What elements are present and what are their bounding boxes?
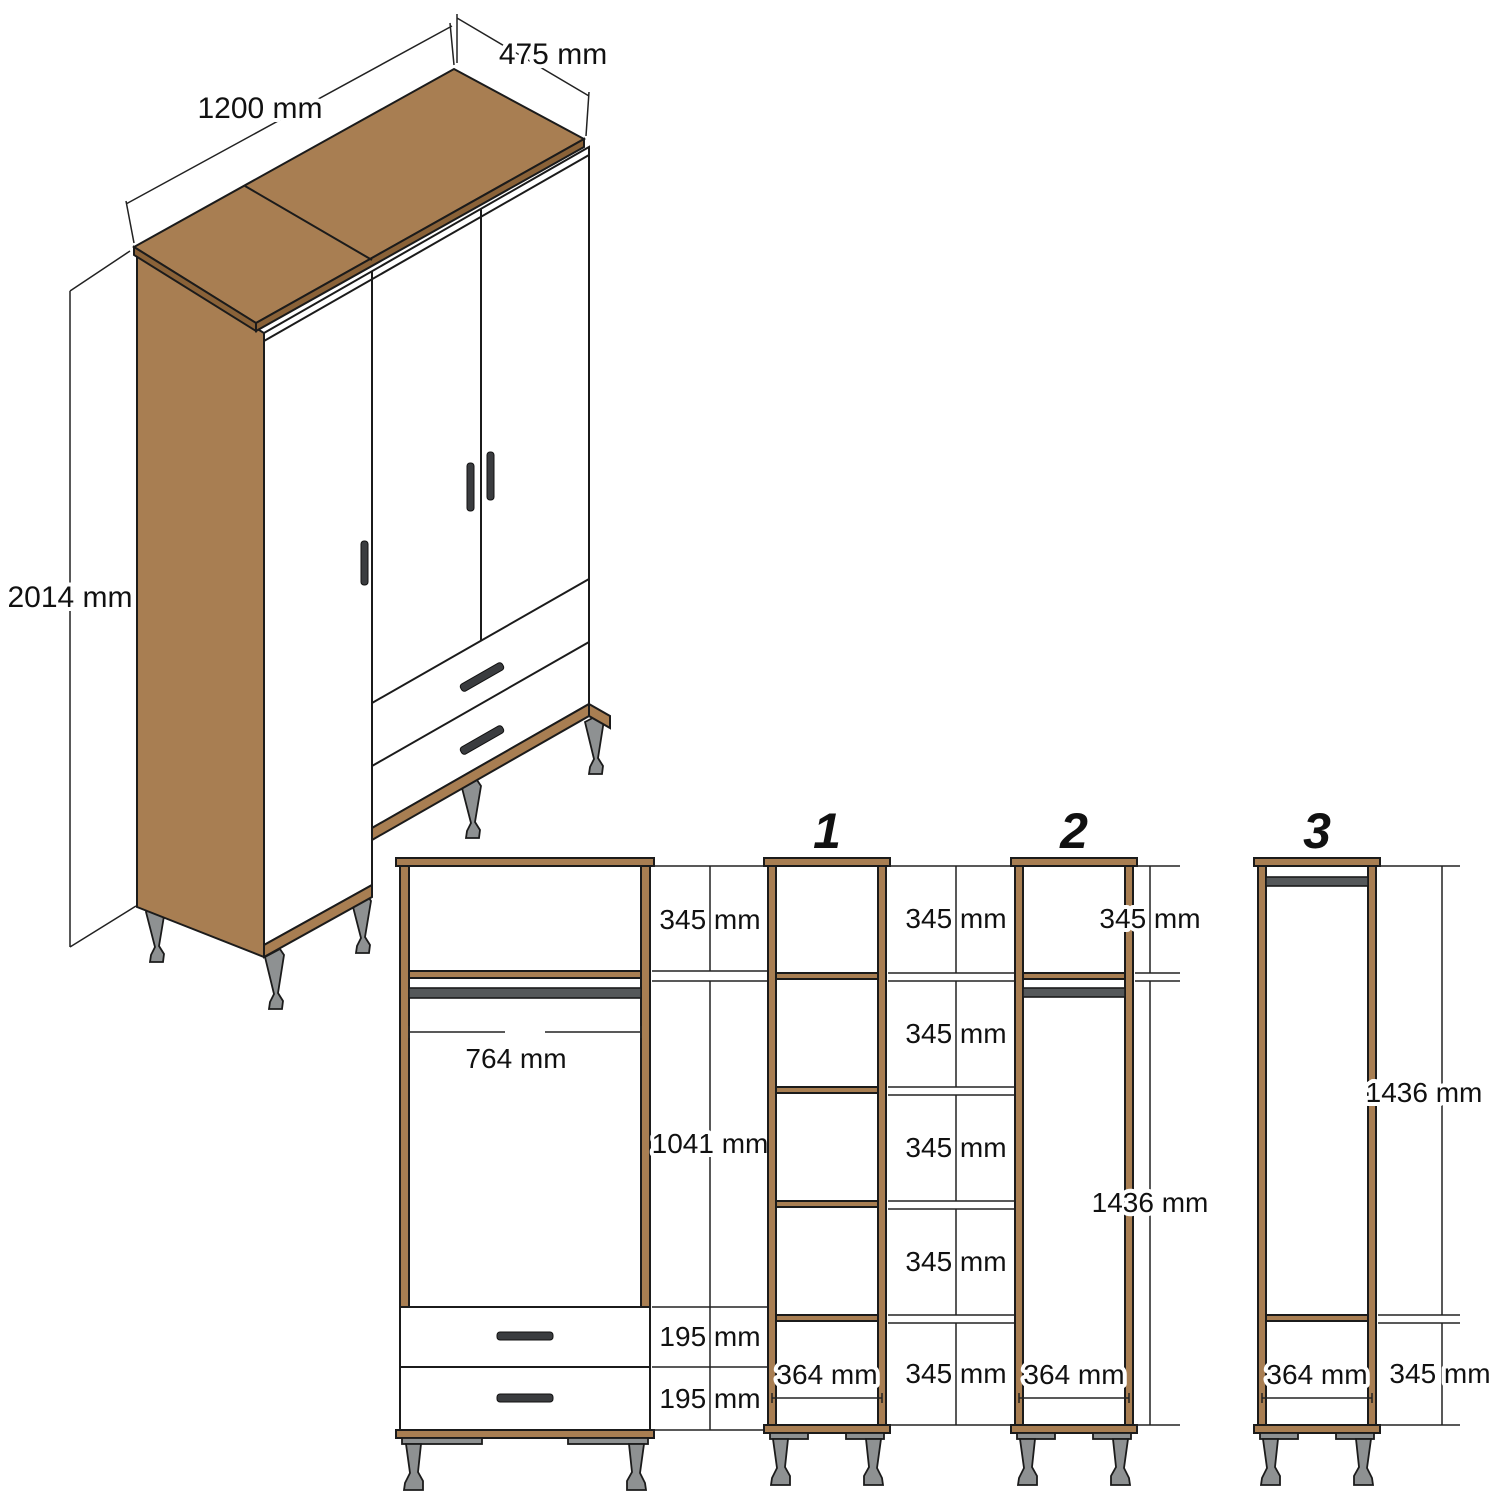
drawer-handle-1	[497, 1332, 553, 1340]
dim-2: 345 mm	[905, 1018, 1006, 1049]
dim-width: 364 mm	[1023, 1359, 1124, 1390]
top-board	[1011, 858, 1137, 866]
dim-4: 345 mm	[905, 1246, 1006, 1277]
shelf-3	[776, 1201, 878, 1207]
side-panel	[137, 255, 264, 957]
section-2-number: 2	[1059, 803, 1088, 859]
dim-5: 345 mm	[905, 1358, 1006, 1389]
left-wall	[1015, 866, 1023, 1425]
top-board	[764, 858, 890, 866]
top-board	[1254, 858, 1380, 866]
dim-1: 1436 mm	[1366, 1077, 1483, 1108]
shelf-4	[776, 1315, 878, 1321]
left-wall	[768, 866, 776, 1425]
dim-2: 345 mm	[1389, 1358, 1490, 1389]
drawing-canvas: 1200 mm 475 mm 2014 mm	[0, 0, 1500, 1500]
top-shelf	[409, 971, 641, 978]
dim-width: 364 mm	[776, 1359, 877, 1390]
carcass	[1258, 866, 1376, 1425]
dim-3: 345 mm	[905, 1132, 1006, 1163]
right-wall	[1368, 866, 1376, 1425]
left-door-handle	[361, 541, 368, 585]
top-board	[396, 858, 654, 866]
hanging-rail	[1023, 988, 1125, 997]
right-door-handle	[487, 452, 494, 500]
bottom-board	[396, 1430, 654, 1438]
height-dim-label: 2014 mm	[7, 581, 132, 614]
shelf	[1266, 1315, 1368, 1321]
hanging-rail	[1266, 877, 1368, 886]
dim-width: 364 mm	[1266, 1359, 1367, 1390]
shelf-1	[776, 973, 878, 979]
dim-1: 345 mm	[1099, 903, 1200, 934]
dim-drawer-bottom: 195 mm	[659, 1383, 760, 1414]
carcass	[1015, 866, 1133, 1425]
width-dim-label: 1200 mm	[197, 92, 322, 125]
bottom-board	[1011, 1425, 1137, 1433]
middle-door-handle	[467, 463, 474, 511]
bottom-board	[764, 1425, 890, 1433]
dim-middle-section: 1041 mm	[652, 1128, 769, 1159]
depth-dim-label: 475 mm	[499, 38, 607, 71]
technical-drawing-page: 1200 mm 475 mm 2014 mm	[0, 0, 1500, 1500]
carcass	[768, 866, 886, 1425]
section-1-number: 1	[813, 803, 841, 859]
dim-2: 1436 mm	[1092, 1187, 1209, 1218]
rail-width-label: 764 mm	[465, 1043, 566, 1074]
drawer-handle-2	[497, 1394, 553, 1402]
left-wall	[1258, 866, 1266, 1425]
shelf	[1023, 973, 1125, 979]
hanging-rail	[409, 988, 641, 998]
section-3-number: 3	[1303, 803, 1331, 859]
bottom-board	[1254, 1425, 1380, 1433]
dim-1: 345 mm	[905, 903, 1006, 934]
dim-top-section: 345 mm	[659, 904, 760, 935]
right-wall	[878, 866, 886, 1425]
shelf-2	[776, 1087, 878, 1093]
dim-drawer-top: 195 mm	[659, 1321, 760, 1352]
right-wall	[1125, 866, 1133, 1425]
